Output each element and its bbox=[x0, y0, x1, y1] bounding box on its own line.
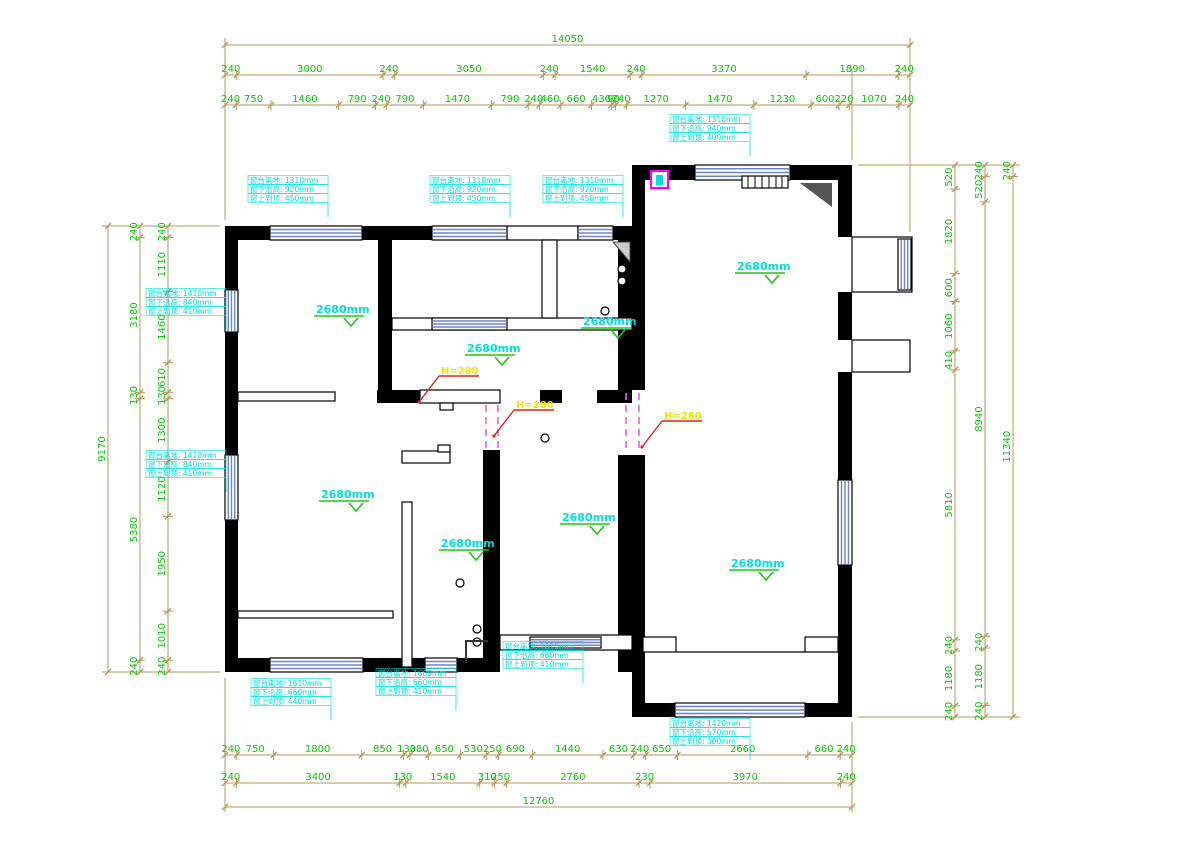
dim-value: 790 bbox=[348, 94, 367, 105]
dim-value: 11340 bbox=[1002, 431, 1013, 463]
pipe-icon bbox=[456, 579, 464, 587]
wall-segment bbox=[378, 226, 392, 403]
svg-text:2680mm: 2680mm bbox=[321, 488, 375, 501]
svg-text:窗台离地: 1410mm: 窗台离地: 1410mm bbox=[148, 288, 217, 298]
beam-height-label: H=280 bbox=[492, 400, 554, 438]
dim-value: 14050 bbox=[552, 34, 584, 45]
partition bbox=[542, 240, 557, 318]
svg-text:2680mm: 2680mm bbox=[562, 511, 616, 524]
door-stop bbox=[440, 403, 453, 410]
check-icon bbox=[590, 526, 604, 534]
dim-row-right_outer: 24011340 bbox=[1002, 161, 1018, 720]
ceiling-height-label: 2680mm bbox=[729, 557, 785, 580]
dim-row-left_mid: 24031801305380240 bbox=[129, 222, 145, 675]
dim-value: 850 bbox=[373, 744, 392, 755]
ceiling-height-label: 2680mm bbox=[319, 488, 375, 511]
window bbox=[432, 226, 507, 240]
dim-row-top_total: 14050 bbox=[222, 34, 913, 50]
svg-text:2680mm: 2680mm bbox=[316, 303, 370, 316]
dim-value: 650 bbox=[652, 744, 671, 755]
svg-text:窗上到顶: 450mm: 窗上到顶: 450mm bbox=[250, 193, 314, 203]
wall-segment bbox=[225, 658, 270, 672]
dim-value: 600 bbox=[944, 278, 955, 297]
dim-value: 1820 bbox=[944, 219, 955, 244]
dim-row-top_row3: 2407501460790240790147079024046066043090… bbox=[221, 94, 914, 110]
dim-value: 1070 bbox=[861, 94, 886, 105]
svg-text:2680mm: 2680mm bbox=[583, 315, 637, 328]
beam-labels: H=280H=280H=280 bbox=[417, 366, 702, 449]
dim-value: 790 bbox=[395, 94, 414, 105]
extension-lines bbox=[102, 38, 1020, 812]
pipe-icon bbox=[618, 265, 626, 273]
window bbox=[578, 226, 613, 240]
svg-text:窗下沿高: 920mm: 窗下沿高: 920mm bbox=[250, 184, 314, 194]
dim-value: 1110 bbox=[157, 252, 168, 277]
dim-value: 1120 bbox=[157, 476, 168, 501]
window bbox=[225, 455, 238, 520]
window bbox=[675, 703, 805, 717]
svg-text:窗上到顶: 450mm: 窗上到顶: 450mm bbox=[545, 193, 609, 203]
power-box-icon bbox=[651, 171, 668, 188]
dim-value: 1540 bbox=[430, 772, 455, 783]
dim-value: 1460 bbox=[157, 314, 168, 339]
pipe-icon bbox=[618, 277, 626, 285]
dim-value: 1270 bbox=[643, 94, 668, 105]
ceiling-height-label: 2680mm bbox=[465, 342, 521, 365]
pipe-icon bbox=[541, 434, 549, 442]
ceiling-height-label: 2680mm bbox=[314, 303, 370, 326]
floor-plan-svg: 1405024030002403050240154024033701890240… bbox=[0, 0, 1200, 849]
dim-row-right_inner: 5201820600106041058102401180240 bbox=[944, 162, 960, 721]
dim-value: 520 bbox=[974, 180, 985, 199]
dim-value: 1010 bbox=[157, 623, 168, 648]
dim-value: 1950 bbox=[157, 551, 168, 576]
wall-segment bbox=[225, 332, 238, 455]
svg-text:窗台离地: 1310mm: 窗台离地: 1310mm bbox=[250, 175, 319, 185]
wall-segment bbox=[838, 372, 852, 480]
svg-text:窗下沿高: 660mm: 窗下沿高: 660mm bbox=[378, 677, 442, 687]
check-icon bbox=[759, 572, 773, 580]
dim-value: 530 bbox=[464, 744, 483, 755]
dim-row-bottom_total: 12760 bbox=[222, 796, 855, 812]
dim-value: 410 bbox=[944, 351, 955, 370]
svg-text:窗台离地: 1310mm: 窗台离地: 1310mm bbox=[672, 114, 741, 124]
dim-value: 790 bbox=[500, 94, 519, 105]
wall-segment bbox=[838, 565, 852, 717]
ceiling-height-label: 2680mm bbox=[735, 260, 791, 283]
dim-value: 660 bbox=[815, 744, 834, 755]
dim-value: 3000 bbox=[297, 64, 322, 75]
wall-segment bbox=[362, 226, 432, 240]
check-icon bbox=[495, 357, 509, 365]
dim-value: 5810 bbox=[944, 492, 955, 517]
dim-value: 1060 bbox=[944, 314, 955, 339]
dim-value: 1300 bbox=[157, 418, 168, 443]
wall-segment bbox=[632, 165, 645, 226]
window bbox=[898, 239, 911, 290]
dim-value: 660 bbox=[567, 94, 586, 105]
pipe-icon bbox=[473, 625, 481, 633]
dim-value: 1540 bbox=[580, 64, 605, 75]
wall-segment bbox=[838, 292, 852, 340]
window bbox=[225, 290, 238, 332]
svg-text:窗下沿高: 940mm: 窗下沿高: 940mm bbox=[672, 123, 736, 133]
svg-text:窗上到顶: 440mm: 窗上到顶: 440mm bbox=[253, 696, 317, 706]
check-icon bbox=[469, 552, 483, 560]
dim-value: 750 bbox=[244, 94, 263, 105]
dim-value: 3970 bbox=[733, 772, 758, 783]
svg-text:窗上到顶: 410mm: 窗上到顶: 410mm bbox=[505, 659, 569, 669]
dim-value: 1180 bbox=[974, 664, 985, 689]
dim-value: 1230 bbox=[770, 94, 795, 105]
walls bbox=[225, 165, 852, 717]
window-annotation: 窗台离地: 1610mm窗下沿高: 660mm窗上到顶: 410mm bbox=[503, 641, 583, 683]
svg-text:窗上到顶: 450mm: 窗上到顶: 450mm bbox=[432, 193, 496, 203]
svg-text:窗台离地: 1420mm: 窗台离地: 1420mm bbox=[672, 718, 741, 728]
check-icon bbox=[344, 318, 358, 326]
svg-text:窗台离地: 1610mm: 窗台离地: 1610mm bbox=[505, 641, 574, 651]
partition bbox=[238, 392, 335, 401]
dim-value: 1440 bbox=[555, 744, 580, 755]
dim-value: 1470 bbox=[707, 94, 732, 105]
svg-text:窗上到顶: 300mm: 窗上到顶: 300mm bbox=[672, 736, 736, 746]
svg-text:2680mm: 2680mm bbox=[467, 342, 521, 355]
cad-canvas[interactable]: 1405024030002403050240154024033701890240… bbox=[0, 0, 1200, 849]
dim-value: 610 bbox=[157, 368, 168, 387]
dim-value: 1460 bbox=[292, 94, 317, 105]
window-annotation: 窗台离地: 1310mm窗下沿高: 920mm窗上到顶: 450mm bbox=[543, 175, 623, 217]
svg-text:窗下沿高: 840mm: 窗下沿高: 840mm bbox=[148, 297, 212, 307]
svg-text:窗台离地: 1610mm: 窗台离地: 1610mm bbox=[253, 678, 322, 688]
pipe-icon bbox=[601, 307, 609, 315]
svg-text:2680mm: 2680mm bbox=[441, 537, 495, 550]
wall-niche bbox=[805, 637, 838, 652]
check-icon bbox=[765, 275, 779, 283]
wall-segment bbox=[805, 703, 852, 717]
wall-segment bbox=[618, 650, 645, 672]
dim-value: 520 bbox=[944, 168, 955, 187]
dim-value: 130 bbox=[157, 386, 168, 405]
dim-value: 12760 bbox=[523, 796, 555, 807]
dim-value: 130 bbox=[129, 386, 140, 405]
wall-segment bbox=[632, 703, 675, 717]
dim-value: 380 bbox=[410, 744, 429, 755]
svg-text:窗下沿高: 920mm: 窗下沿高: 920mm bbox=[545, 184, 609, 194]
window bbox=[270, 658, 363, 672]
dim-value: 3370 bbox=[711, 64, 736, 75]
window bbox=[838, 480, 852, 565]
dim-value: 8940 bbox=[974, 406, 985, 431]
ceiling-height-label: 2680mm bbox=[560, 511, 616, 534]
wall-segment bbox=[377, 390, 420, 403]
dim-value: 9170 bbox=[97, 436, 108, 461]
dim-value: 1890 bbox=[839, 64, 864, 75]
window-annotation: 窗台离地: 1610mm窗下沿高: 660mm窗上到顶: 440mm bbox=[251, 678, 331, 720]
dim-row-top_row2: 24030002403050240154024033701890240 bbox=[221, 64, 913, 80]
dim-value: 1180 bbox=[944, 666, 955, 691]
svg-text:窗台离地: 1410mm: 窗台离地: 1410mm bbox=[148, 450, 217, 460]
dim-row-bottom_row1: 2407501800850130380650530250690144063024… bbox=[221, 744, 855, 760]
svg-text:2680mm: 2680mm bbox=[731, 557, 785, 570]
svg-text:窗下沿高: 660mm: 窗下沿高: 660mm bbox=[253, 687, 317, 697]
partition bbox=[402, 451, 450, 463]
dim-value: 3050 bbox=[456, 64, 481, 75]
dim-value: 1470 bbox=[445, 94, 470, 105]
dim-value: 630 bbox=[609, 744, 628, 755]
bay-outline bbox=[852, 340, 910, 372]
svg-text:窗下沿高: 840mm: 窗下沿高: 840mm bbox=[148, 459, 212, 469]
svg-text:2680mm: 2680mm bbox=[737, 260, 791, 273]
svg-text:窗台离地: 1310mm: 窗台离地: 1310mm bbox=[545, 175, 614, 185]
partition bbox=[402, 502, 412, 667]
dim-value: 690 bbox=[506, 744, 525, 755]
partition-walls bbox=[238, 226, 912, 667]
wall-segment bbox=[225, 226, 238, 290]
svg-text:窗台离地: 1310mm: 窗台离地: 1310mm bbox=[432, 175, 501, 185]
window bbox=[432, 318, 507, 330]
dim-row-left_outer: 9170 bbox=[97, 223, 113, 675]
dim-value: 130 bbox=[393, 772, 412, 783]
dim-row-right_mid: 24052089402401180240 bbox=[974, 161, 990, 720]
dim-value: 3400 bbox=[305, 772, 330, 783]
wall-segment bbox=[618, 455, 645, 658]
svg-text:窗上到顶: 410mm: 窗上到顶: 410mm bbox=[148, 468, 212, 478]
window-annotation: 窗台离地: 1310mm窗下沿高: 940mm窗上到顶: 400mm bbox=[670, 114, 750, 156]
window-annotation: 窗台离地: 1310mm窗下沿高: 920mm窗上到顶: 450mm bbox=[430, 175, 510, 217]
partition bbox=[238, 611, 393, 618]
window-annotation: 窗台离地: 1600mm窗下沿高: 660mm窗上到顶: 410mm bbox=[376, 668, 456, 710]
dim-value: 1800 bbox=[305, 744, 330, 755]
wall-segment bbox=[483, 450, 500, 672]
check-icon bbox=[349, 503, 363, 511]
dim-value: 3180 bbox=[129, 302, 140, 327]
dim-value: 2760 bbox=[560, 772, 585, 783]
dim-value: 750 bbox=[246, 744, 265, 755]
wall-segment bbox=[225, 520, 238, 672]
window bbox=[270, 226, 362, 240]
dim-value: 460 bbox=[541, 94, 560, 105]
dim-value: 5380 bbox=[129, 517, 140, 542]
window-annotation: 窗台离地: 1310mm窗下沿高: 920mm窗上到顶: 450mm bbox=[248, 175, 328, 217]
svg-text:窗下沿高: 660mm: 窗下沿高: 660mm bbox=[505, 650, 569, 660]
dim-value: 250 bbox=[483, 744, 502, 755]
wall-niche bbox=[643, 637, 676, 652]
corner-duct-icon bbox=[800, 183, 832, 207]
dim-row-bottom_row2: 2403400130154031025027602303970240 bbox=[221, 772, 856, 788]
svg-text:窗上到顶: 410mm: 窗上到顶: 410mm bbox=[378, 686, 442, 696]
dim-value: 600 bbox=[815, 94, 834, 105]
partition bbox=[420, 390, 500, 403]
dim-value: 650 bbox=[435, 744, 454, 755]
partition bbox=[507, 226, 578, 240]
door-stop bbox=[438, 445, 450, 452]
svg-text:窗下沿高: 920mm: 窗下沿高: 920mm bbox=[432, 184, 496, 194]
svg-text:窗台离地: 1600mm: 窗台离地: 1600mm bbox=[378, 668, 447, 678]
vent-grille-icon bbox=[742, 176, 788, 188]
svg-text:窗上到顶: 400mm: 窗上到顶: 400mm bbox=[672, 132, 736, 142]
svg-text:窗上到顶: 410mm: 窗上到顶: 410mm bbox=[148, 306, 212, 316]
beam-height-label: H=280 bbox=[640, 411, 702, 449]
windows bbox=[225, 165, 911, 717]
wall-segment bbox=[838, 165, 852, 237]
svg-text:窗下沿高: 570mm: 窗下沿高: 570mm bbox=[672, 727, 736, 737]
